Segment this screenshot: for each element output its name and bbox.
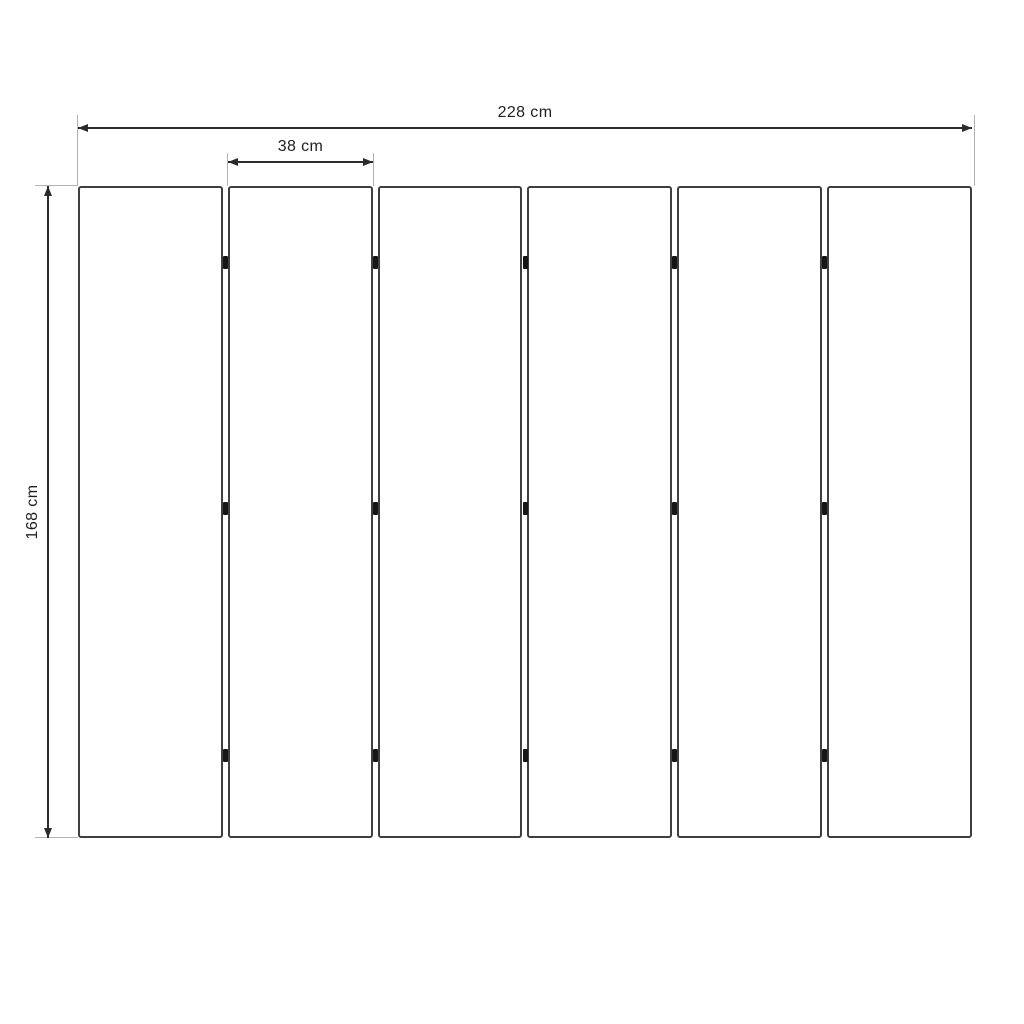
panel-width-dimension-label: 38 cm [228,138,373,156]
extension-line-top [35,185,78,186]
hinge-mark [672,749,677,762]
height-dimension-line [47,186,49,838]
extension-line-bottom [35,837,78,838]
arrowhead-up-icon [44,186,52,196]
hinge-mark [223,749,228,762]
total-width-dimension-label: 228 cm [78,104,972,122]
hinge-mark [822,502,827,515]
hinge-mark [373,256,378,269]
extension-line-panel-right [373,153,374,186]
hinge-mark [822,256,827,269]
arrowhead-down-icon [44,828,52,838]
arrowhead-right-icon [962,124,972,132]
panel [827,186,972,838]
panel-dimension-diagram: 228 cm 38 cm 168 cm [0,0,1024,1024]
arrowhead-left-icon [228,158,238,166]
panels-row [78,186,972,838]
hinge-mark [822,749,827,762]
hinge-mark [523,256,528,269]
total-width-dimension-line [78,127,972,129]
panel [78,186,223,838]
hinge-mark [223,502,228,515]
hinge-mark [373,749,378,762]
panel [677,186,822,838]
hinge-mark [373,502,378,515]
arrowhead-right-icon [363,158,373,166]
height-dimension-label: 168 cm [24,485,42,540]
panel [228,186,373,838]
hinge-mark [223,256,228,269]
hinge-mark [672,502,677,515]
hinge-mark [523,502,528,515]
panel-width-dimension-line [228,161,373,163]
hinge-mark [672,256,677,269]
panel [527,186,672,838]
extension-line-right [974,115,975,186]
hinge-mark [523,749,528,762]
arrowhead-left-icon [78,124,88,132]
panel [378,186,523,838]
